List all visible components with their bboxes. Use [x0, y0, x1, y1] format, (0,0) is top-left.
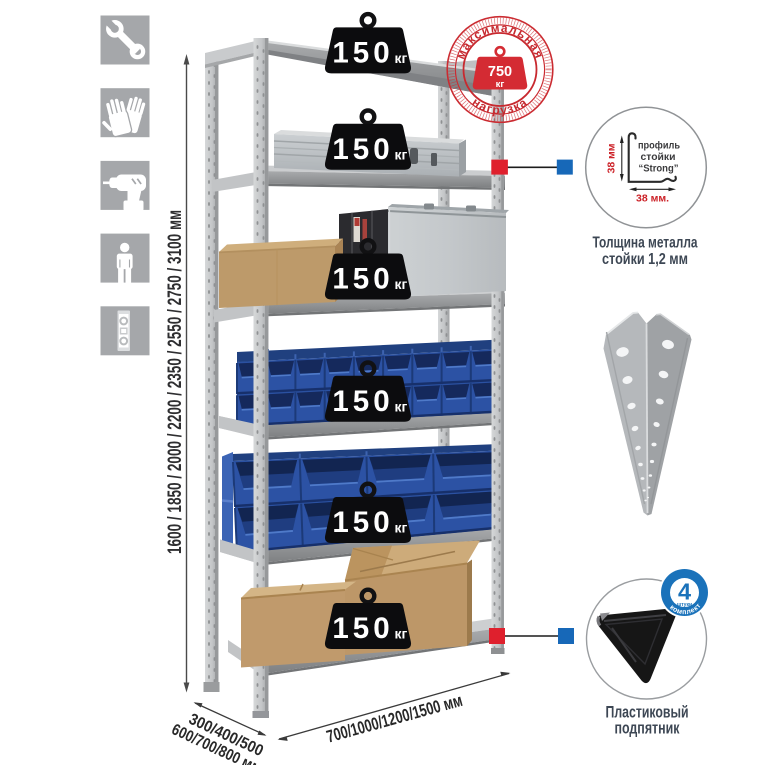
svg-text:1600 / 1850 / 2000 / 2200 / 23: 1600 / 1850 / 2000 / 2200 / 2350 / 2550 …: [165, 210, 186, 554]
svg-text:750: 750: [488, 64, 512, 80]
svg-text:кг: кг: [395, 626, 408, 642]
svg-text:кг: кг: [395, 50, 408, 66]
svg-text:150: 150: [332, 506, 393, 539]
svg-text:кг: кг: [395, 398, 408, 414]
svg-text:150: 150: [332, 612, 393, 645]
svg-text:кг: кг: [395, 146, 408, 162]
svg-text:кг: кг: [395, 276, 408, 292]
svg-text:4: 4: [678, 579, 691, 605]
svg-text:38 мм.: 38 мм.: [636, 194, 669, 205]
svg-text:150: 150: [332, 263, 393, 296]
svg-text:38 мм: 38 мм: [607, 144, 618, 174]
svg-text:стойки 1,2 мм: стойки 1,2 мм: [602, 251, 688, 268]
svg-text:Толщина металла: Толщина металла: [593, 235, 698, 252]
svg-text:подпятник: подпятник: [615, 720, 681, 738]
svg-text:150: 150: [332, 36, 393, 69]
svg-text:кг: кг: [395, 520, 408, 536]
svg-text:стойки: стойки: [641, 152, 676, 163]
svg-text:150: 150: [332, 385, 393, 418]
svg-text:“Strong”: “Strong”: [639, 164, 679, 175]
svg-text:штуки: штуки: [677, 602, 692, 608]
svg-text:кг: кг: [496, 79, 505, 90]
svg-text:150: 150: [332, 133, 393, 166]
svg-text:профиль: профиль: [638, 141, 680, 152]
